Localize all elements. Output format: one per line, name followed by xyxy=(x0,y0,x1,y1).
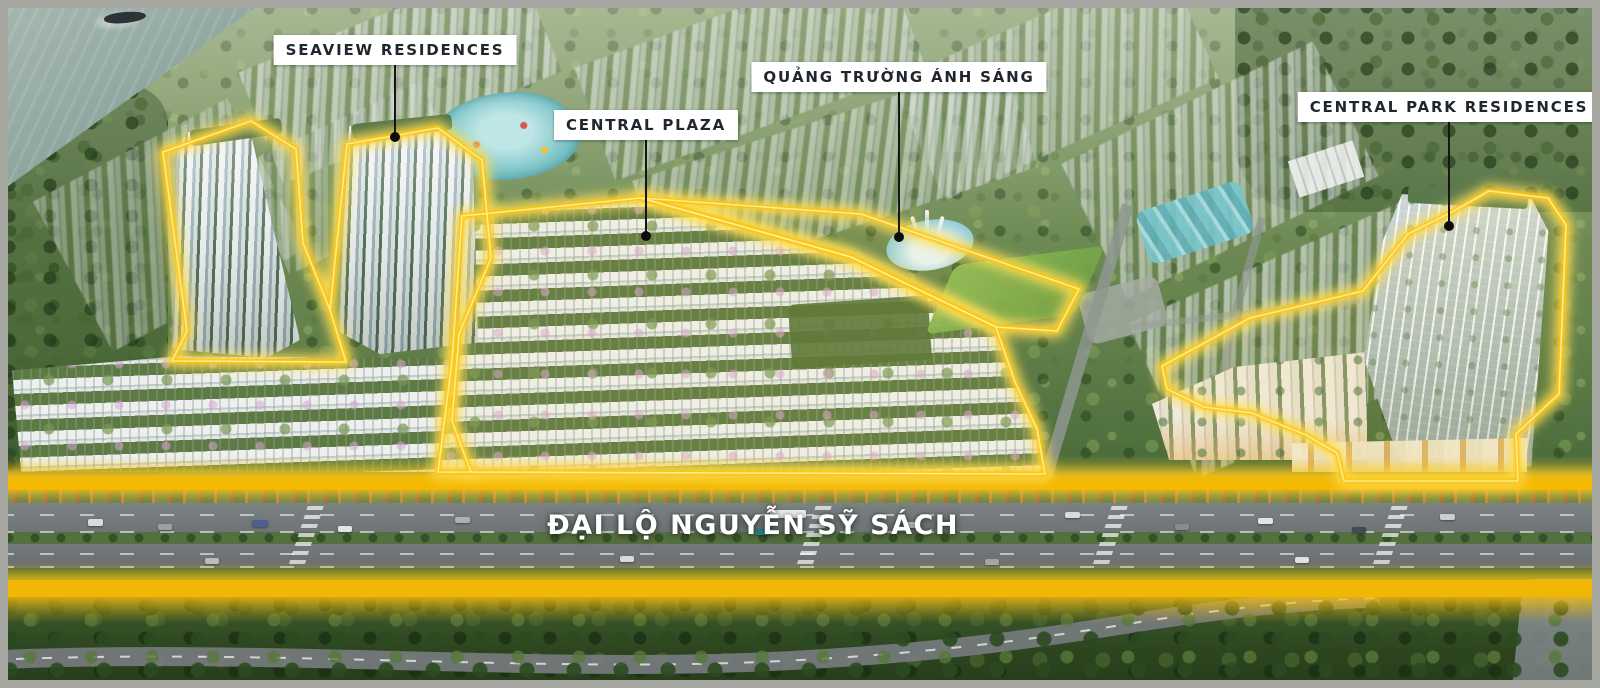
car xyxy=(338,526,352,532)
leader-line-seaview xyxy=(394,64,396,137)
lane-dashes xyxy=(0,566,1600,568)
car xyxy=(1440,514,1455,520)
avenue-tree-edge xyxy=(0,568,1600,579)
leader-line-central-plaza xyxy=(645,139,647,236)
car xyxy=(1352,527,1366,533)
car xyxy=(1295,557,1309,563)
road-highlight-halo xyxy=(0,455,1600,477)
car xyxy=(455,517,470,523)
road-highlight-band-bottom xyxy=(0,580,1600,597)
callout-central-park-residences: CENTRAL PARK RESIDENCES xyxy=(1298,92,1600,122)
central-park-tower xyxy=(1360,193,1549,467)
road-highlight-band-top xyxy=(0,477,1600,490)
car xyxy=(1258,518,1273,524)
location-dot-central-park xyxy=(1444,221,1454,231)
fountain-jet xyxy=(925,210,929,236)
masterplan-aerial-image: SEAVIEW RESIDENCES CENTRAL PLAZA QUẢNG T… xyxy=(0,0,1600,688)
callout-seaview-residences: SEAVIEW RESIDENCES xyxy=(274,35,517,65)
inner-garden-court xyxy=(788,295,932,369)
location-dot-central-plaza xyxy=(641,231,651,241)
car xyxy=(158,524,172,530)
flower-median xyxy=(0,490,1600,503)
location-dot-seaview xyxy=(390,132,400,142)
location-dot-quang-truong xyxy=(894,232,904,242)
car xyxy=(620,556,634,562)
road-highlight-fade xyxy=(0,597,1600,623)
callout-quang-truong-anh-sang: QUẢNG TRƯỜNG ÁNH SÁNG xyxy=(751,62,1046,92)
leader-line-quang-truong xyxy=(898,91,900,237)
car xyxy=(205,558,219,564)
car xyxy=(88,519,103,526)
avenue-name-label: ĐẠI LỘ NGUYỄN SỸ SÁCH xyxy=(547,510,959,541)
car xyxy=(252,520,268,527)
callout-central-plaza: CENTRAL PLAZA xyxy=(554,110,738,140)
leader-line-central-park xyxy=(1448,121,1450,226)
car xyxy=(985,559,999,565)
car xyxy=(1175,524,1189,530)
seaview-tower-2 xyxy=(338,126,478,354)
car xyxy=(1065,512,1080,518)
